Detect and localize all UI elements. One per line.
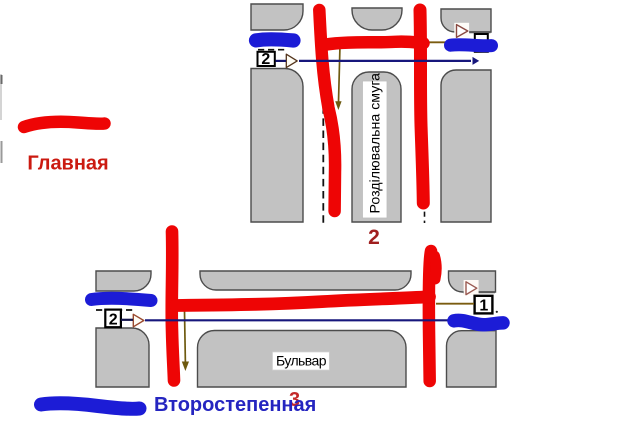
svg-text:2: 2: [261, 51, 270, 68]
svg-text:2: 2: [109, 312, 118, 329]
svg-text:1: 1: [479, 298, 488, 315]
svg-text:Второстепенная: Второстепенная: [154, 394, 316, 416]
svg-text:Бульвар: Бульвар: [276, 352, 327, 368]
svg-text:Главная: Главная: [27, 153, 108, 175]
svg-text:2: 2: [368, 226, 380, 249]
svg-text:Розділювальна смуга: Розділювальна смуга: [368, 73, 384, 214]
